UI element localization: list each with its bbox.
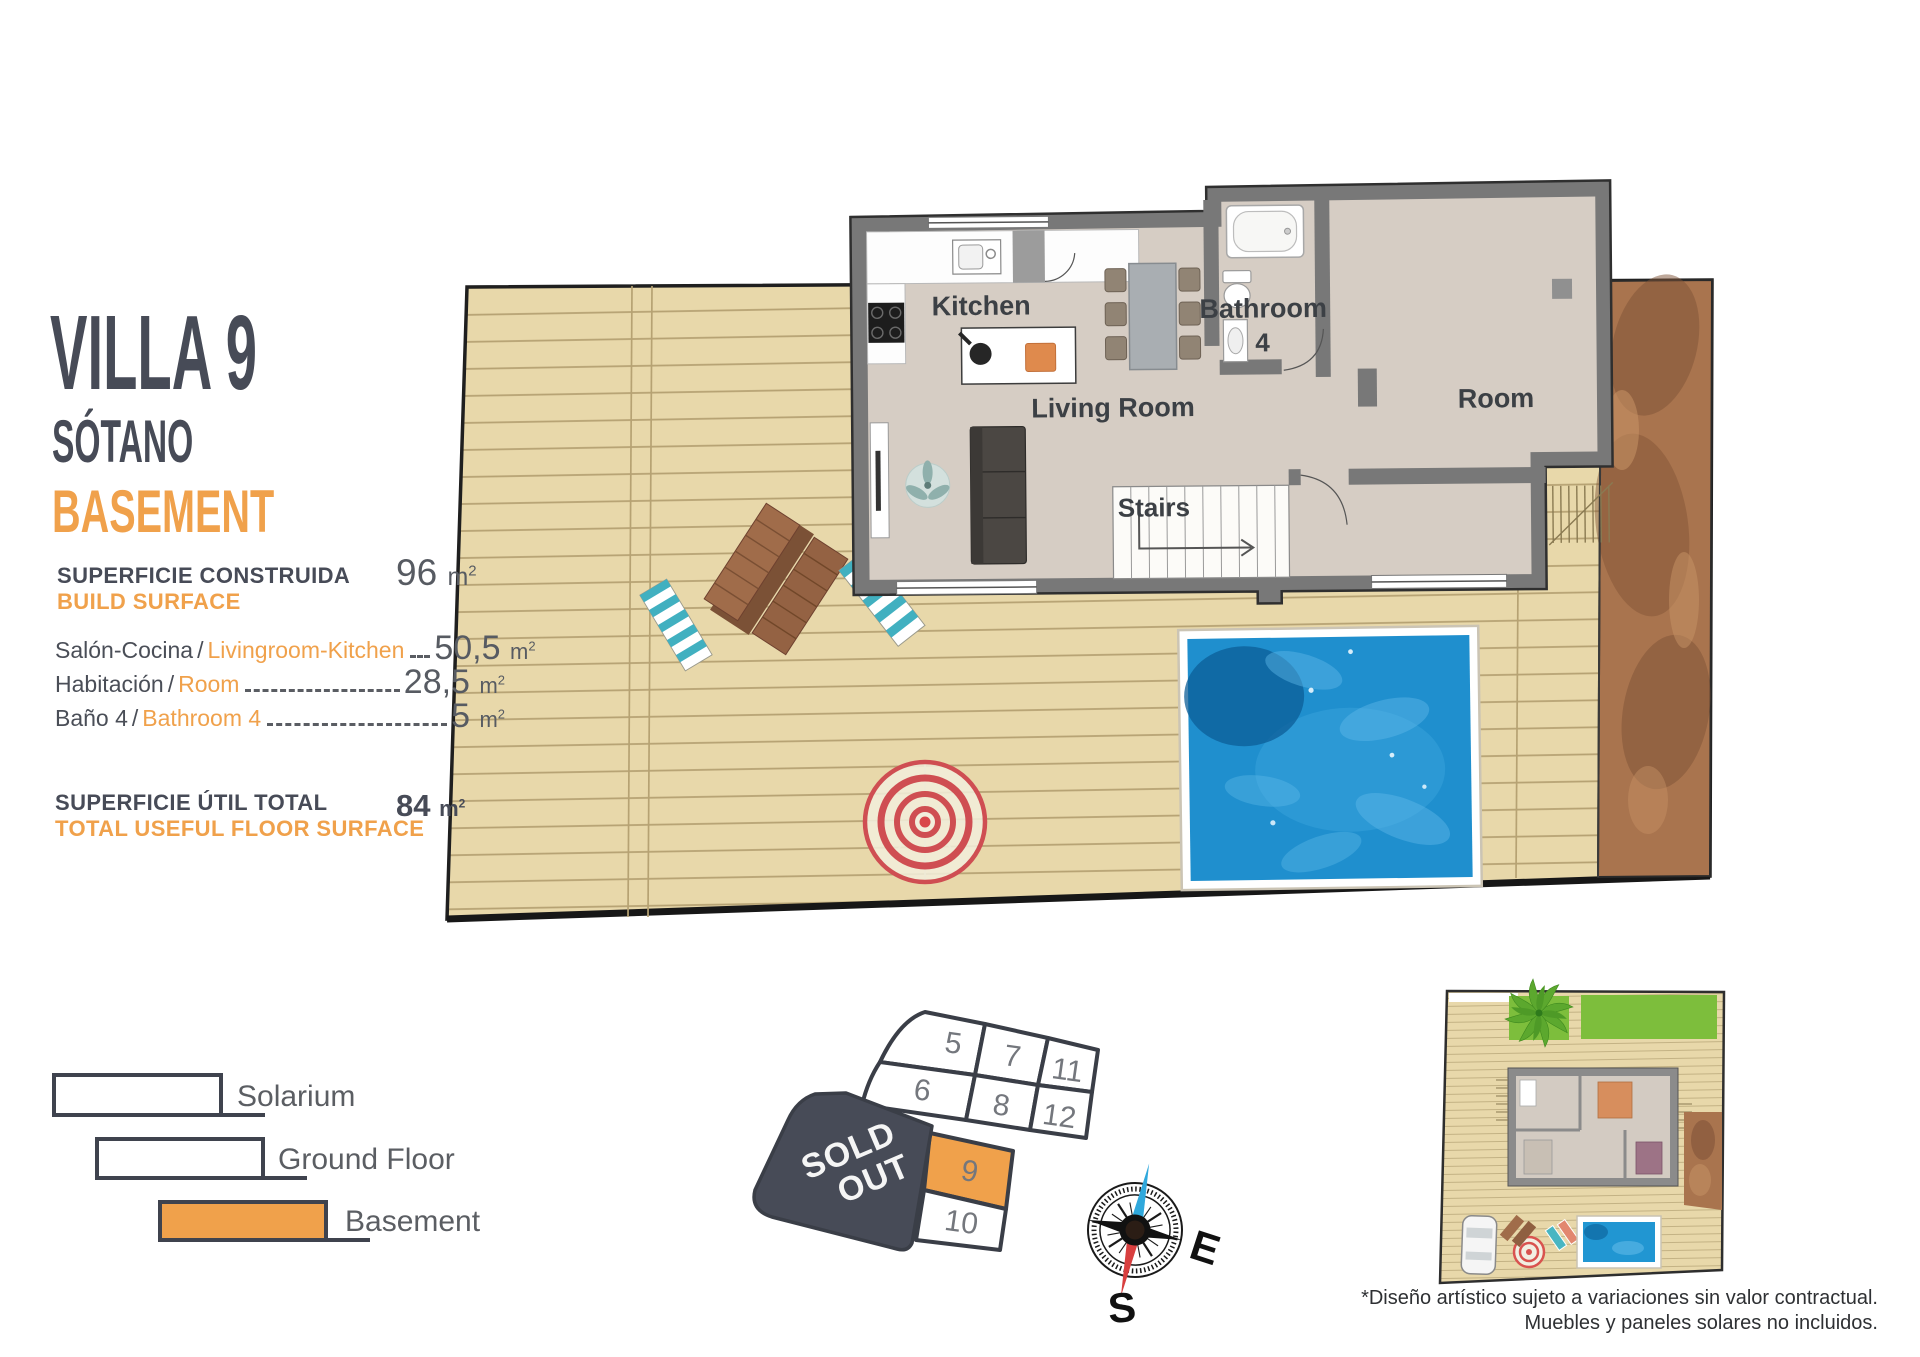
- disclaimer-line1: *Diseño artístico sujeto a variaciones s…: [1361, 1286, 1878, 1311]
- total-label-es: SUPERFICIE ÚTIL TOTAL: [55, 790, 424, 816]
- subtitle-es: SÓTANO: [52, 412, 193, 472]
- disclaimer-line2: Muebles y paneles solares no incluidos.: [1361, 1311, 1878, 1336]
- legend-step-line: [158, 1238, 370, 1242]
- list-item: Habitación/Room 28,5 m2: [55, 668, 505, 702]
- list-item: Baño 4/Bathroom 4 5 m2: [55, 702, 505, 736]
- mini-dirt: [1684, 1112, 1722, 1210]
- mini-car: [1461, 1215, 1497, 1274]
- total-label-en: TOTAL USEFUL FLOOR SURFACE: [55, 816, 424, 842]
- unit: m2: [447, 563, 476, 591]
- legend-step-line: [52, 1113, 265, 1117]
- build-surface-label-en: BUILD SURFACE: [57, 589, 350, 615]
- build-surface-number: 96: [396, 552, 437, 593]
- bathroom-label: Bathroom: [1199, 293, 1327, 324]
- house: Kitchen Living Room Bathroom 4 Room Stai…: [850, 180, 1614, 607]
- mini-house: [1496, 1068, 1692, 1186]
- pan-icon: [969, 343, 991, 365]
- build-surface-value: 96 m2: [396, 552, 477, 594]
- legend-label-solarium: Solarium: [237, 1080, 355, 1114]
- total-number: 84: [396, 788, 430, 823]
- kitchen-label: Kitchen: [932, 290, 1031, 321]
- room-value: 5 m2: [451, 697, 505, 736]
- room-name: Baño 4/Bathroom 4: [55, 705, 261, 732]
- mini-pool: [1577, 1216, 1661, 1268]
- compass-rose: E S: [1074, 1154, 1226, 1332]
- build-surface-label-es: SUPERFICIE CONSTRUIDA: [57, 563, 350, 589]
- plot-10-label: 10: [943, 1204, 981, 1241]
- mini-lawn: [1581, 995, 1717, 1039]
- compass-south-label: S: [1106, 1283, 1137, 1332]
- swimming-pool: [1178, 626, 1482, 890]
- room-wardrobe: [1552, 279, 1572, 299]
- dining-set: [1105, 263, 1201, 370]
- bathroom-number-label: 4: [1255, 327, 1270, 357]
- living-room-label: Living Room: [1031, 392, 1195, 423]
- room-surface-list: Salón-Cocina/Livingroom-Kitchen 50,5 m2 …: [55, 634, 505, 736]
- disclaimer: *Diseño artístico sujeto a variaciones s…: [1361, 1286, 1878, 1336]
- compass-east-label: E: [1185, 1221, 1226, 1274]
- legend-step-line: [95, 1176, 307, 1180]
- plot-12-label: 12: [1041, 1098, 1079, 1135]
- total-surface-heading: SUPERFICIE ÚTIL TOTAL TOTAL USEFUL FLOOR…: [55, 790, 424, 842]
- dotted-leader: [267, 723, 447, 726]
- legend-label-basement: Basement: [345, 1205, 480, 1239]
- legend-box-basement: [158, 1200, 328, 1242]
- room-name: Habitación/Room: [55, 671, 239, 698]
- legend-box-ground-floor: [95, 1137, 265, 1180]
- subtitle-en: BASEMENT: [52, 482, 274, 542]
- legend-box-solarium: [52, 1073, 223, 1117]
- dotted-leader: [410, 655, 430, 658]
- build-surface-heading: SUPERFICIE CONSTRUIDA BUILD SURFACE: [57, 563, 350, 615]
- kitchen-column: [1013, 230, 1045, 282]
- room-name: Salón-Cocina/Livingroom-Kitchen: [55, 637, 404, 664]
- room-label: Room: [1458, 383, 1535, 414]
- mini-site-plan: [1440, 977, 1724, 1283]
- page-title: VILLA 9: [50, 300, 257, 406]
- dotted-leader: [245, 689, 399, 692]
- dining-table: [1129, 263, 1177, 369]
- unit: m2: [439, 796, 465, 821]
- legend-label-ground-floor: Ground Floor: [278, 1143, 455, 1177]
- mini-entrance: [1449, 993, 1518, 1002]
- cutting-board-icon: [1026, 343, 1056, 371]
- plot-11-label: 11: [1050, 1052, 1085, 1089]
- stairs-label: Stairs: [1118, 492, 1191, 523]
- total-surface-value: 84 m2: [396, 788, 465, 824]
- parasol-icon: [865, 762, 985, 882]
